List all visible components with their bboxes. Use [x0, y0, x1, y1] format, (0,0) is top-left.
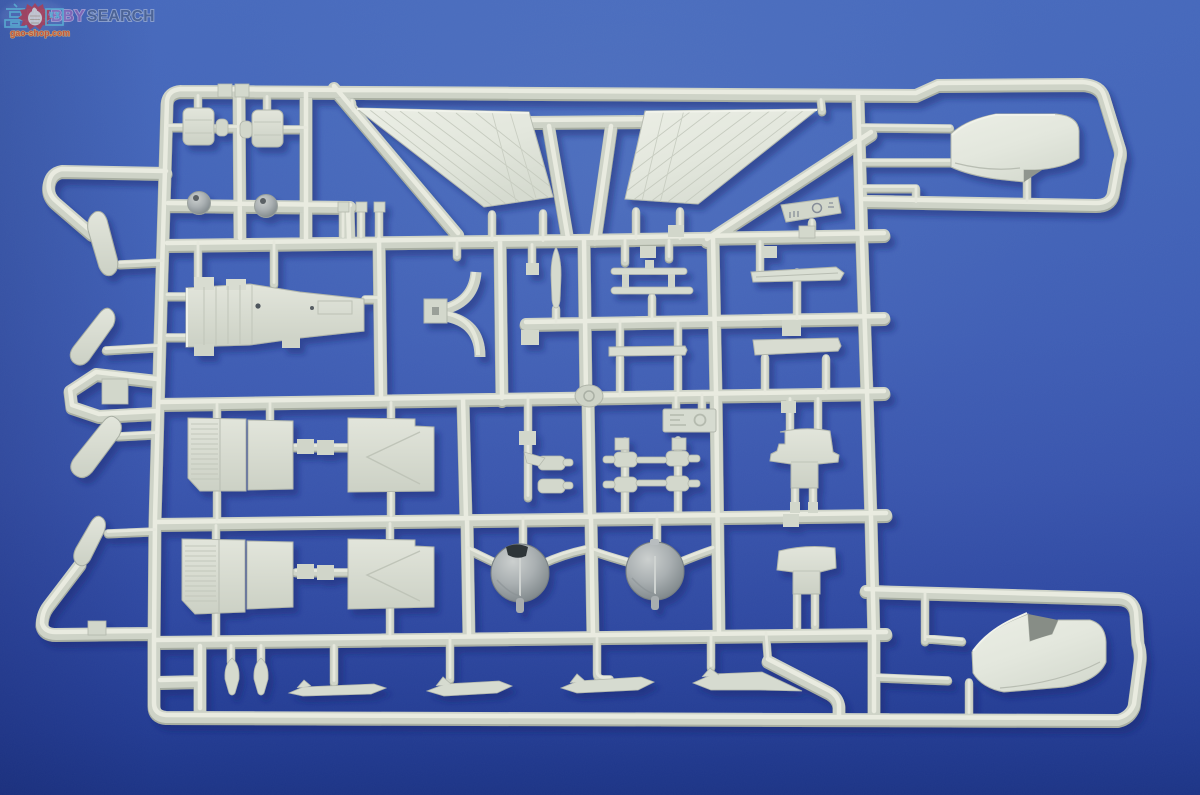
svg-text:gao-shop.com: gao-shop.com	[10, 28, 70, 38]
svg-text:SEARCH: SEARCH	[87, 8, 155, 25]
